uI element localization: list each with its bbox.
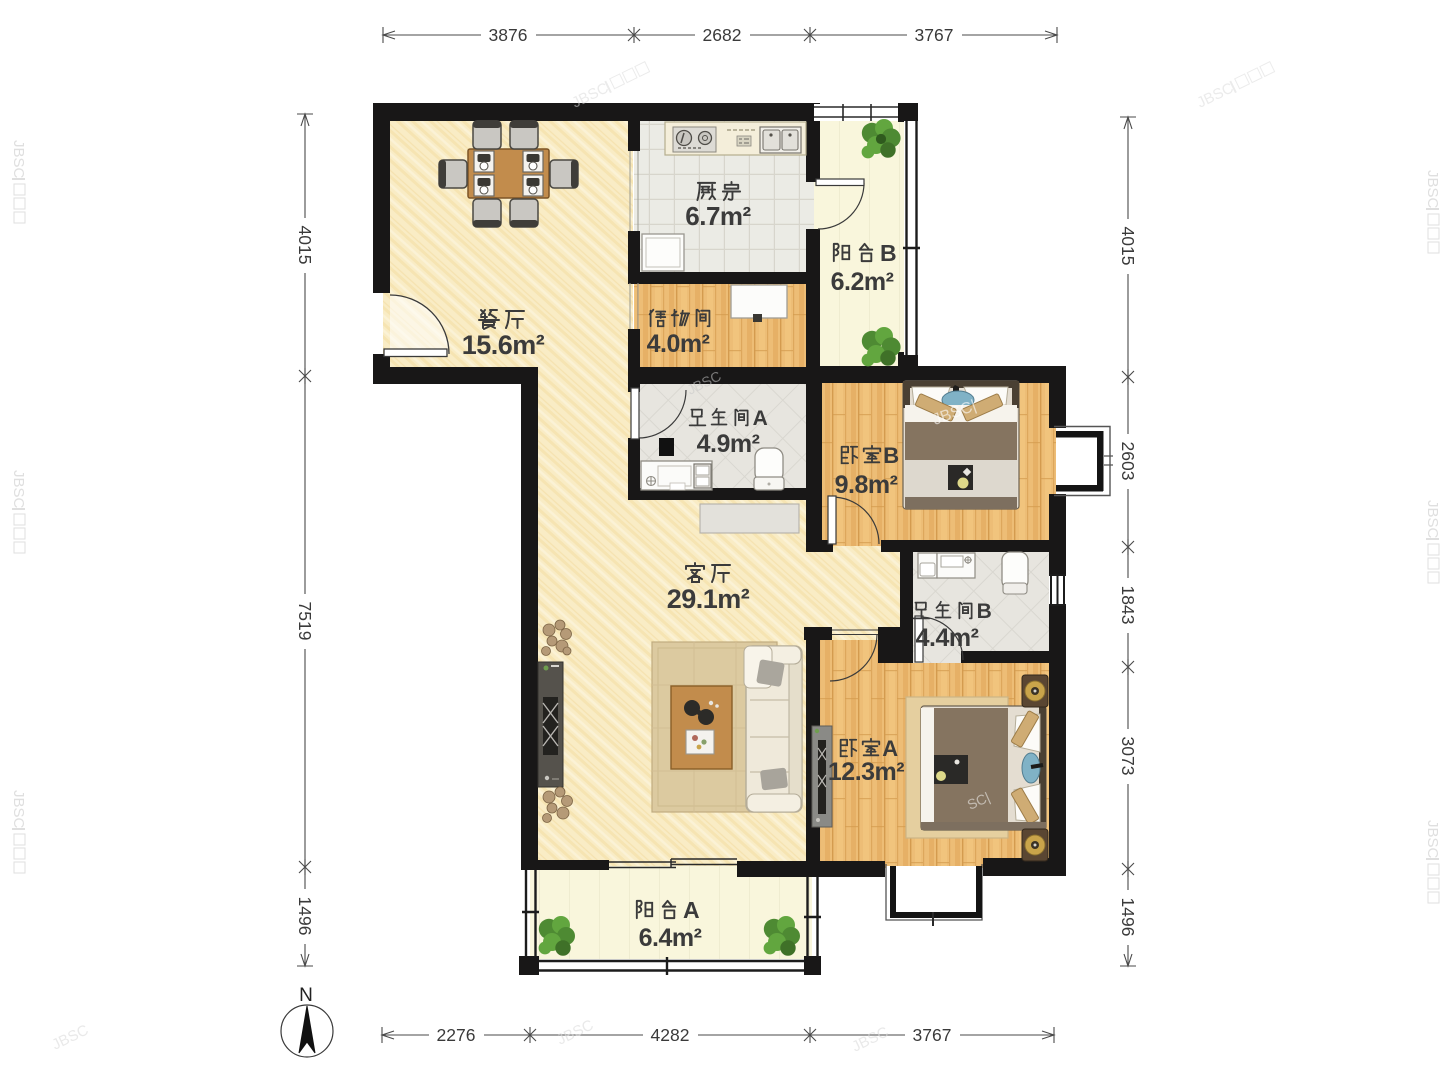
svg-text:3767: 3767 [913,1025,952,1045]
svg-text:JBSC: JBSC [10,140,27,179]
svg-text:4.0m²: 4.0m² [647,330,710,358]
svg-text:6.2m²: 6.2m² [831,268,894,296]
svg-text:3876: 3876 [489,25,528,45]
svg-text:JBSC: JBSC [10,790,27,829]
svg-text:JBSC: JBSC [1424,170,1440,209]
svg-text:3767: 3767 [915,25,954,45]
svg-text:6.7m²: 6.7m² [685,201,751,231]
svg-text:N: N [299,985,313,1006]
svg-text:4015: 4015 [295,226,315,265]
svg-text:6.4m²: 6.4m² [639,924,702,952]
svg-text:A: A [683,897,699,923]
svg-text:B: B [977,600,992,623]
svg-text:3073: 3073 [1118,737,1138,776]
svg-text:2276: 2276 [437,1025,476,1045]
svg-text:29.1m²: 29.1m² [667,584,750,614]
svg-text:2682: 2682 [703,25,742,45]
svg-text:2603: 2603 [1118,442,1138,481]
svg-text:JBSC: JBSC [1424,500,1440,539]
svg-text:4.9m²: 4.9m² [697,430,760,458]
svg-text:4.4m²: 4.4m² [916,624,979,652]
svg-text:1496: 1496 [295,897,315,936]
svg-text:15.6m²: 15.6m² [462,330,545,360]
svg-text:4015: 4015 [1118,227,1138,266]
svg-text:A: A [753,407,768,430]
svg-text:12.3m²: 12.3m² [828,758,904,786]
svg-text:1843: 1843 [1118,586,1138,625]
svg-text:4282: 4282 [651,1025,690,1045]
svg-text:JBSC: JBSC [10,470,27,509]
svg-text:B: B [883,443,898,468]
svg-text:9.8m²: 9.8m² [835,471,898,499]
svg-text:1496: 1496 [1118,898,1138,937]
svg-text:7519: 7519 [295,602,315,641]
svg-text:B: B [880,240,896,266]
svg-text:JBSC: JBSC [1424,820,1440,859]
